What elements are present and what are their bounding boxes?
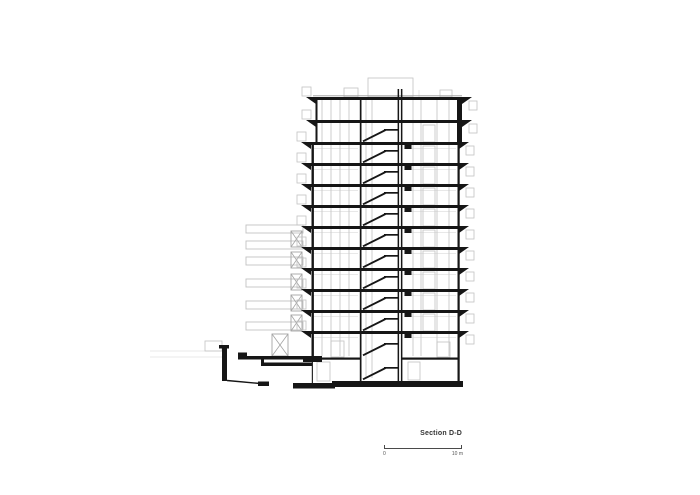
scale-bar-zero-label: 0 bbox=[383, 451, 386, 457]
scale-bar-line bbox=[384, 448, 462, 449]
section-drawing bbox=[0, 0, 700, 495]
structural-walls bbox=[312, 89, 463, 383]
podium-foundation bbox=[219, 345, 463, 389]
drawing-sheet: Section D-D 0 10 m bbox=[0, 0, 700, 495]
floor-slabs bbox=[301, 97, 472, 338]
rooftop-outlines bbox=[205, 78, 462, 381]
scale-bar-max-label: 10 m bbox=[452, 451, 463, 457]
scale-bar-tick-left bbox=[384, 445, 385, 449]
background-building bbox=[150, 90, 419, 357]
stair-runs bbox=[363, 129, 398, 379]
scale-bar-tick-right bbox=[461, 445, 462, 449]
scale-bar: 0 10 m bbox=[384, 444, 462, 458]
drawing-title: Section D-D bbox=[384, 430, 462, 437]
